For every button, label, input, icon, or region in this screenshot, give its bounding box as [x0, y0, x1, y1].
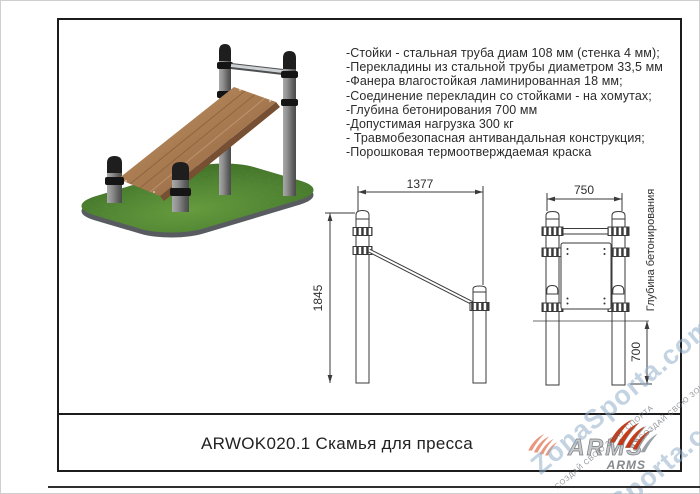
spec-line: -Порошковая термоотверждаемая краска	[346, 145, 656, 159]
side-view-drawing: 1377 1845	[311, 177, 489, 383]
front-depth-value: 700	[629, 342, 643, 362]
product-render	[63, 44, 332, 243]
foundation-depth-label: Глубина бетонирования	[645, 189, 657, 312]
front-view-drawing: 750	[533, 183, 657, 385]
page-bottom-edge	[48, 486, 700, 488]
spec-line: - Травмобезопасная антивандальная констр…	[346, 131, 656, 145]
dim-width-1377: 1377	[358, 177, 483, 285]
spec-line: -Перекладины из стальной трубы диаметром…	[346, 60, 656, 74]
arms-swoosh-watermark-icon	[528, 434, 557, 456]
render-short-post-mid	[170, 162, 191, 212]
render-tall-post-right	[281, 51, 298, 196]
spec-line: -Стойки - стальная труба диам 108 мм (ст…	[346, 46, 656, 60]
spec-line: -Фанера влагостойкая ламинированная 18 м…	[346, 74, 656, 88]
dim-depth-700: 700	[629, 321, 652, 384]
spec-line: -Глубина бетонирования 700 мм	[346, 103, 656, 117]
dim-width-750: 750	[547, 183, 622, 211]
arms-logo: ARMS ARMS	[510, 412, 690, 474]
side-height-value: 1845	[311, 284, 325, 311]
arms-wordmark-small: ARMS	[606, 458, 646, 472]
front-width-value: 750	[574, 183, 594, 197]
render-crossbar	[231, 66, 283, 73]
spec-list: -Стойки - стальная труба диам 108 мм (ст…	[346, 46, 656, 160]
render-clamp-left	[105, 177, 124, 185]
spec-sheet-page: 1377 1845	[0, 0, 700, 494]
spec-line: -Соединение перекладин со стойками - на …	[346, 89, 656, 103]
front-view-plate	[561, 243, 611, 309]
spec-line: -Допустимая нагрузка 300 кг	[346, 117, 656, 131]
side-width-value: 1377	[407, 177, 434, 191]
dim-height-1845: 1845	[311, 213, 355, 383]
